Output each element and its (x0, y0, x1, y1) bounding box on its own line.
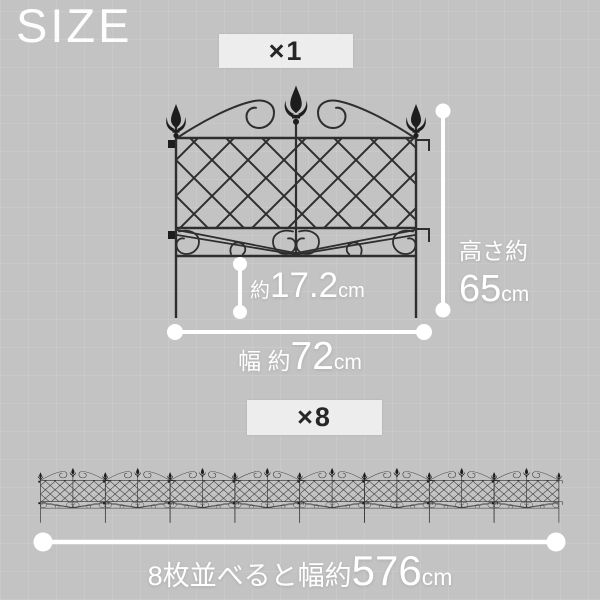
fence-row-panel (103, 468, 174, 523)
row-label-unit: cm (422, 564, 453, 590)
fence-row-panel (38, 468, 109, 523)
height-dimension-line (436, 104, 451, 318)
width-prefix: 幅 約 (238, 348, 290, 374)
fence-row-panel (362, 468, 433, 523)
height-label: 高さ約 65cm (459, 240, 529, 308)
width-value: 72 (291, 335, 334, 378)
row-width-dimension-line (34, 533, 566, 552)
row-label-prefix: 8枚並べると幅約 (148, 561, 352, 591)
stake-unit: cm (338, 280, 365, 302)
height-label-text: 高さ約 (459, 240, 529, 263)
fence-row-panel (297, 468, 368, 523)
height-value: 65 (459, 268, 501, 310)
row-width-label: 8枚並べると幅約576cm (0, 550, 600, 592)
stake-depth-dimension-line (233, 257, 247, 319)
fence-row-panel (491, 468, 562, 523)
stake-prefix: 約 (250, 280, 270, 302)
width-label: 幅 約72cm (175, 337, 425, 376)
fence-row-illustration (38, 468, 563, 523)
fence-row-panel (167, 468, 238, 523)
height-unit: cm (501, 283, 529, 306)
fence-row-panel (427, 468, 498, 523)
width-unit: cm (334, 351, 362, 374)
stake-value: 17.2 (270, 266, 338, 305)
row-label-value: 576 (352, 547, 422, 594)
fence-row-panel (232, 468, 303, 523)
size-diagram: SIZE ×1 ×8 (0, 0, 600, 600)
stake-depth-label: 約17.2cm (250, 268, 365, 303)
